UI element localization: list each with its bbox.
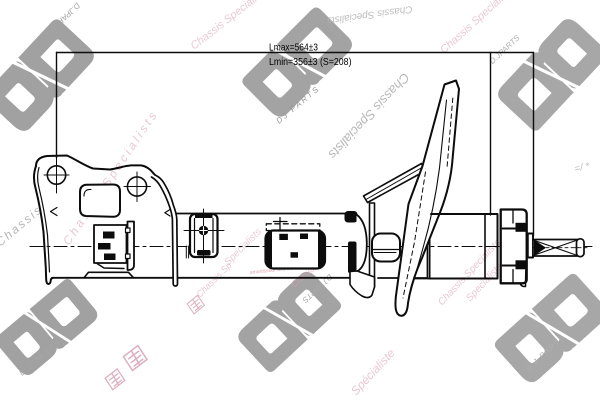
svg-text:Chassis: Chassis [0,202,45,249]
svg-text:Chassis Specialists: Chassis Specialists [325,70,413,162]
svg-text:=/ *: =/ * [573,161,591,175]
svg-text:Spécialiste: Spécialiste [348,346,398,398]
svg-text:Lmin=356±3 (S=208): Lmin=356±3 (S=208) [269,56,352,68]
svg-text:Chassis Specialists: Chassis Specialists [188,0,270,52]
svg-text:Chassis Specialists: Chassis Specialists [326,3,413,26]
svg-text:Chassis Sp: Chassis Sp [194,260,233,299]
svg-text:Lmax=564±3: Lmax=564±3 [269,42,318,54]
svg-text:D.JPARTS: D.JPARTS [488,33,522,66]
svg-text:Specialists: Specialists [222,227,264,269]
